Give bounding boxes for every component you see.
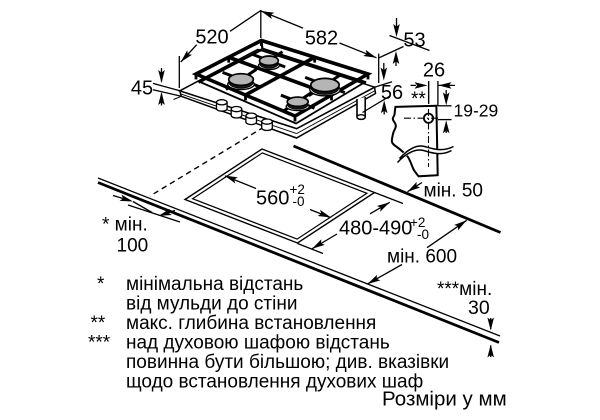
svg-text:*: * bbox=[97, 274, 105, 295]
svg-text:582: 582 bbox=[305, 28, 338, 50]
svg-text:мінімальна відстань: мінімальна відстань bbox=[126, 274, 303, 295]
svg-text:**: ** bbox=[91, 313, 106, 334]
svg-text:53: 53 bbox=[403, 30, 425, 52]
svg-text:Розміри у мм: Розміри у мм bbox=[382, 388, 507, 411]
svg-text:щодо встановлення духових шаф: щодо встановлення духових шаф bbox=[126, 372, 423, 393]
svg-text:30: 30 bbox=[468, 297, 490, 319]
svg-text:26: 26 bbox=[423, 60, 445, 82]
svg-text:**: ** bbox=[411, 89, 426, 110]
svg-text:мін. 600: мін. 600 bbox=[387, 247, 457, 268]
svg-text:повинна бути більшою; див. вка: повинна бути більшою; див. вказівки bbox=[126, 352, 449, 373]
svg-text:480-490: 480-490 bbox=[339, 218, 412, 240]
svg-text:100: 100 bbox=[117, 236, 149, 257]
svg-text:над духовою шафою відстань: над духовою шафою відстань bbox=[126, 333, 390, 354]
svg-text:520: 520 bbox=[195, 27, 228, 49]
svg-text:від мульди до стіни: від мульди до стіни bbox=[126, 294, 297, 315]
svg-text:макс. глибина встановлення: макс. глибина встановлення bbox=[126, 313, 376, 334]
svg-text:56: 56 bbox=[381, 82, 403, 104]
svg-text:* мін.: * мін. bbox=[102, 215, 148, 236]
svg-text:мін. 50: мін. 50 bbox=[424, 181, 483, 202]
svg-text:-0: -0 bbox=[417, 227, 429, 242]
svg-text:560: 560 bbox=[256, 188, 289, 210]
svg-text:45: 45 bbox=[131, 78, 153, 100]
svg-text:***: *** bbox=[88, 333, 111, 354]
svg-text:19-29: 19-29 bbox=[454, 101, 499, 121]
svg-text:-0: -0 bbox=[293, 194, 305, 209]
